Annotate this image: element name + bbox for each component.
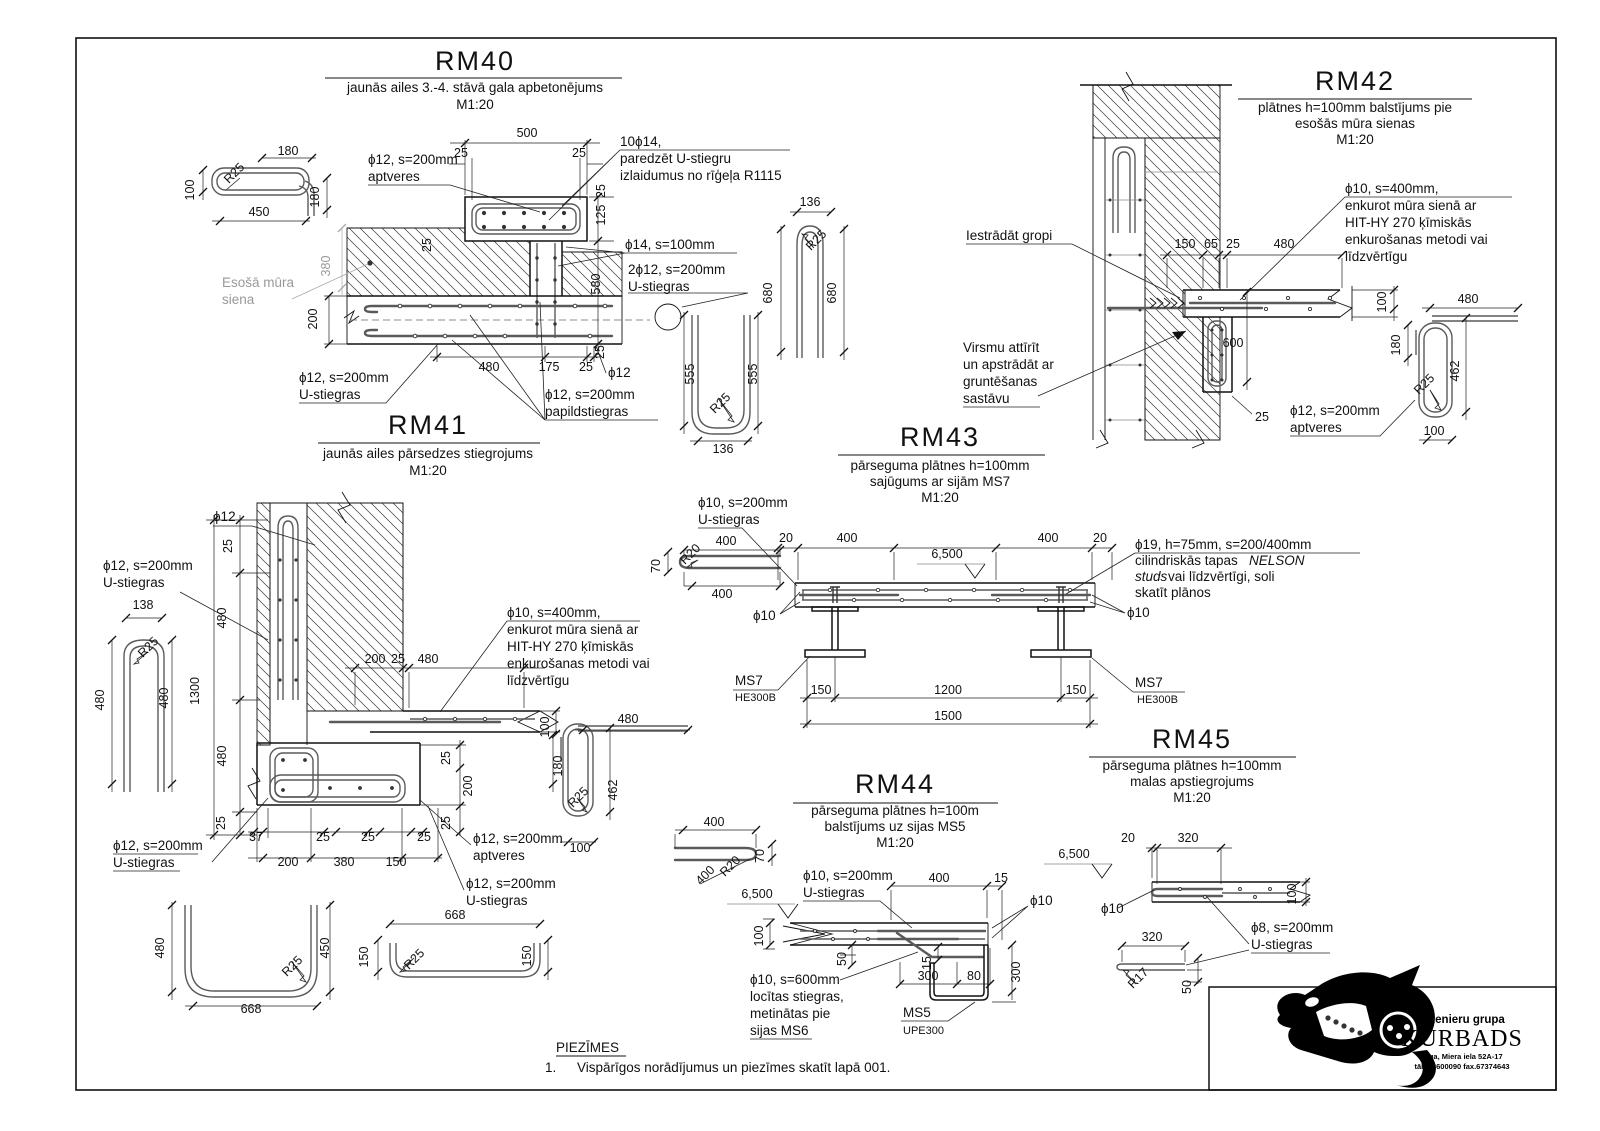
dim-text: 100 <box>1285 884 1299 905</box>
dim-text: 50 <box>1180 980 1194 994</box>
label-text: aptveres <box>473 848 525 863</box>
dim-text: 480 <box>153 938 167 959</box>
dim-text: 480 <box>1274 237 1295 251</box>
dim-text: R25 <box>1411 371 1437 397</box>
dim-text: 25 <box>593 345 607 359</box>
dim-text: 6,500 <box>931 547 962 561</box>
label-text: ϕ12, s=200mm <box>299 370 389 385</box>
dim-text: 320 <box>1142 930 1163 944</box>
detail-subtitle: plātnes h=100mm balstījums pie <box>1258 100 1452 115</box>
dim-text: 150 <box>386 855 407 869</box>
label-text: vai līdzvērtīgi, soli <box>1168 569 1275 584</box>
logo-phone: tālr.28600090 fax.67374643 <box>1382 1062 1542 1072</box>
label-text: U-stiegras <box>698 512 760 527</box>
detail-rm44: RM44pārseguma plātnes h=100mbalstījums u… <box>675 769 1053 1039</box>
label-text: U-stiegras <box>113 855 175 870</box>
dim-text: 100 <box>183 180 197 201</box>
label-text: Iestrādāt gropi <box>966 228 1052 243</box>
label-text: gruntēšanas <box>963 374 1038 389</box>
dim-text: 480 <box>93 690 107 711</box>
notes-block: PIEZĪMES1.Vispārīgos norādījumus un piez… <box>545 1040 890 1075</box>
notes-heading: PIEZĪMES <box>556 1040 619 1055</box>
label-text: HIT-HY 270 ķīmiskās <box>1345 215 1472 230</box>
label-text: 2ϕ12, s=200mm <box>628 262 725 277</box>
label-text: papildstiegras <box>545 404 629 419</box>
dim-text: 480 <box>618 712 639 726</box>
dim-text: 25 <box>439 751 453 765</box>
dim-text: 25 <box>1226 237 1240 251</box>
label-text: U-stiegras <box>103 575 165 590</box>
label-text: ϕ10 <box>1030 893 1053 908</box>
note-item-text: Vispārīgos norādījumus un piezīmes skatī… <box>577 1060 890 1075</box>
dim-text: 400 <box>704 815 725 829</box>
label-text: līdzvērtīgu <box>1345 249 1407 264</box>
dim-text: 668 <box>241 1002 262 1016</box>
dim-text: 25 <box>439 816 453 830</box>
dim-text: 300 <box>918 969 939 983</box>
label-text: 10ϕ14, <box>620 134 661 149</box>
dim-text: 380 <box>319 256 333 277</box>
dim-text: 15 <box>994 871 1008 885</box>
dim-text: 6,500 <box>741 887 772 901</box>
dim-text: 480 <box>479 360 500 374</box>
label-text: ϕ10, s=400mm, <box>1345 181 1438 196</box>
detail-title: RM44 <box>855 769 935 799</box>
dim-text: 138 <box>133 598 154 612</box>
label-text: un apstrādāt ar <box>963 357 1054 372</box>
dim-text: 180 <box>1389 335 1403 356</box>
dim-text: 25 <box>572 146 586 160</box>
dim-text: 70 <box>649 559 663 573</box>
detail-title: RM43 <box>900 422 980 452</box>
dim-text: 400 <box>837 531 858 545</box>
detail-rm42: RM42plātnes h=100mm balstījums pieesošās… <box>963 66 1522 448</box>
dim-text: 500 <box>517 126 538 140</box>
dim-text: 100 <box>1424 424 1445 438</box>
label-text: HE300B <box>1137 694 1178 706</box>
dim-text: 50 <box>835 952 849 966</box>
dim-text: 450 <box>249 205 270 219</box>
dim-text: 37 <box>249 830 263 844</box>
dim-text: 150 <box>1066 683 1087 697</box>
dim-text: 25 <box>579 360 593 374</box>
label-text: ϕ10, s=600mm <box>750 972 840 987</box>
note-item-number: 1. <box>545 1060 556 1075</box>
dim-text: 1300 <box>188 677 202 705</box>
label-text: ϕ12, s=200mm <box>103 558 193 573</box>
dim-text: 25 <box>594 184 608 198</box>
label-text: sijas MS6 <box>750 1023 809 1038</box>
dim-text: 200 <box>278 855 299 869</box>
detail-rm43: RM43pārseguma plātnes h=100mmsajūgums ar… <box>649 422 1360 728</box>
label-text: locītas stiegras, <box>750 989 844 1004</box>
label-text: NELSON <box>1249 553 1305 568</box>
dim-text: 450 <box>318 938 332 959</box>
dim-text: 20 <box>779 531 793 545</box>
dim-text: 555 <box>746 364 760 385</box>
label-text: ϕ8, s=200mm <box>1251 920 1333 935</box>
detail-subtitle: M1:20 <box>409 463 447 478</box>
logo-address: Rīga, Miera iela 52A-17 <box>1382 1052 1542 1062</box>
label-text: studs <box>1135 569 1168 584</box>
dim-text: 462 <box>606 780 620 801</box>
logo-group-name: inženieru grupa <box>1382 1014 1542 1027</box>
dim-text: 180 <box>551 756 565 777</box>
dim-text: 200 <box>461 776 475 797</box>
label-text: līdzvērtīgu <box>507 673 569 688</box>
label-text: Virsmu attīrīt <box>963 340 1040 355</box>
dim-text: 25 <box>316 830 330 844</box>
detail-subtitle: esošās mūra sienas <box>1295 116 1415 131</box>
dim-text: 6,500 <box>1058 847 1089 861</box>
label-text: MS7 <box>1135 675 1163 690</box>
dim-text: 150 <box>1175 237 1196 251</box>
steel-beam-he300b-right <box>1031 607 1091 657</box>
label-text: ϕ10 <box>753 608 776 623</box>
dim-text: 480 <box>418 652 439 666</box>
steel-beam-he300b-left <box>805 607 865 657</box>
label-text: ϕ12, s=200mm <box>368 152 458 167</box>
dim-text: 150 <box>811 683 832 697</box>
dim-text: 462 <box>1448 361 1462 382</box>
detail-subtitle: M1:20 <box>921 490 959 505</box>
dim-text: 380 <box>334 855 355 869</box>
title-block-texts: inženieru grupa KURBADS Rīga, Miera iela… <box>1382 1014 1542 1072</box>
label-text: siena <box>222 292 255 307</box>
dim-text: 175 <box>539 360 560 374</box>
dim-text: 400 <box>1038 531 1059 545</box>
dim-text: 480 <box>215 746 229 767</box>
detail-title: RM42 <box>1315 66 1395 96</box>
label-text: aptveres <box>368 169 420 184</box>
label-text: izlaidumus no rīģeļa R1115 <box>620 168 782 183</box>
detail-subtitle: M1:20 <box>1173 790 1211 805</box>
dim-text: 136 <box>713 442 734 456</box>
dim-text: 300 <box>1009 962 1023 983</box>
dim-text: 20 <box>1121 831 1135 845</box>
dim-text: 400 <box>716 534 737 548</box>
dim-text: 180 <box>308 187 322 208</box>
label-text: U-stiegras <box>628 279 690 294</box>
dim-text: 200 <box>306 309 320 330</box>
label-text: ϕ10, s=200mm <box>698 495 788 510</box>
label-text: cilindriskās tapas <box>1135 553 1238 568</box>
label-text: skatīt plānos <box>1135 585 1211 600</box>
label-text: Esošā mūra <box>222 275 295 290</box>
detail-title: RM41 <box>388 410 468 440</box>
label-text: MS5 <box>903 1005 931 1020</box>
label-text: MS7 <box>735 673 763 688</box>
label-text: enkurot mūra sienā ar <box>507 622 639 637</box>
label-text: U-stiegras <box>466 893 528 908</box>
dim-text: R25 <box>221 160 247 186</box>
label-text: ϕ10, s=200mm <box>803 868 893 883</box>
dim-text: 680 <box>825 283 839 304</box>
label-text: enkurošanas metodi vai <box>507 656 650 671</box>
dim-text: 100 <box>1375 292 1389 313</box>
dim-text: 1200 <box>934 683 962 697</box>
dim-text: 150 <box>357 947 371 968</box>
dim-text: 25 <box>417 830 431 844</box>
dim-text: 555 <box>683 364 697 385</box>
dim-text: 150 <box>520 946 534 967</box>
label-text: HE300B <box>735 692 776 704</box>
dim-text: 180 <box>278 144 299 158</box>
rebar-dots <box>482 211 566 229</box>
label-text: aptveres <box>1290 420 1342 435</box>
dim-text: 200 <box>365 652 386 666</box>
detail-subtitle: M1:20 <box>456 97 494 112</box>
detail-subtitle: pārseguma plātnes h=100mm <box>1103 758 1282 773</box>
label-text: ϕ12, s=200mm <box>545 387 635 402</box>
dim-text: 25 <box>221 539 235 553</box>
dim-text: 25 <box>361 830 375 844</box>
label-text: ϕ10 <box>1101 901 1124 916</box>
label-text: U-stiegras <box>1251 937 1313 952</box>
dim-text: 320 <box>1178 831 1199 845</box>
u-bar-shape-668 <box>168 901 334 1010</box>
drawing-canvas: RM40jaunās ailes 3.-4. stāvā gala apbeto… <box>0 0 1600 1131</box>
detail-rm41: RM41jaunās ailes pārsedzes stiegrojumsM1… <box>93 410 692 1016</box>
detail-subtitle: pārseguma plātnes h=100m <box>811 803 979 818</box>
label-text: ϕ19, h=75mm, s=200/400mm <box>1135 537 1311 552</box>
label-text: ϕ10, s=400mm, <box>507 605 600 620</box>
detail-title: RM40 <box>435 46 515 76</box>
dim-text: 400 <box>929 871 950 885</box>
drawing-sheet: RM40jaunās ailes 3.-4. stāvā gala apbeto… <box>0 0 1600 1131</box>
detail-subtitle: M1:20 <box>876 835 914 850</box>
label-text: U-stiegras <box>299 387 361 402</box>
label-text: ϕ12, s=200mm <box>466 876 556 891</box>
detail-title: RM45 <box>1152 724 1232 754</box>
dim-text: 680 <box>761 283 775 304</box>
label-text: enkurošanas metodi vai <box>1345 232 1488 247</box>
dim-text: 15 <box>920 956 934 970</box>
dim-text: R20 <box>717 853 743 879</box>
dim-text: 70 <box>753 849 767 863</box>
label-text: ϕ10 <box>1127 605 1150 620</box>
dim-text: R17 <box>1125 965 1151 991</box>
label-text: ϕ12, s=200mm <box>113 838 203 853</box>
detail-rm40: RM40jaunās ailes 3.-4. stāvā gala apbeto… <box>183 46 848 456</box>
detail-subtitle: jaunās ailes 3.-4. stāvā gala apbetonēju… <box>346 80 603 95</box>
label-text: ϕ12 <box>213 509 236 524</box>
dim-text: 480 <box>1458 292 1479 306</box>
label-text: UPE300 <box>903 1025 944 1037</box>
label-text: ϕ12, s=200mm <box>473 831 563 846</box>
dim-text: 100 <box>538 717 552 738</box>
dim-text: 25 <box>214 816 228 830</box>
logo-company-name: KURBADS <box>1382 1027 1542 1052</box>
detail-subtitle: balstījums uz sijas MS5 <box>824 819 965 834</box>
detail-subtitle: M1:20 <box>1336 132 1374 147</box>
dim-text: 125 <box>594 205 608 226</box>
dim-text: 25 <box>420 238 434 252</box>
label-text: enkurot mūra sienā ar <box>1345 198 1477 213</box>
detail-subtitle: pārseguma plātnes h=100mm <box>851 458 1030 473</box>
dim-text: 480 <box>215 608 229 629</box>
label-text: U-stiegras <box>803 885 865 900</box>
dim-text: 80 <box>967 969 981 983</box>
dim-text: 400 <box>712 587 733 601</box>
dim-text: R25 <box>803 227 829 253</box>
hook-bar-shape-480 <box>1404 304 1522 444</box>
label-text: sastāvu <box>963 391 1010 406</box>
detail-rm45: RM45pārseguma plātnes h=100mmmalas apsti… <box>1044 724 1333 994</box>
dim-text: 100 <box>570 841 591 855</box>
dim-text: 600 <box>1223 336 1244 350</box>
dim-text: 480 <box>157 688 171 709</box>
label-text: paredzēt U-stiegru <box>620 151 731 166</box>
dim-text: 25 <box>391 652 405 666</box>
dim-text: 668 <box>445 908 466 922</box>
hook-bar-shape-462 <box>549 724 692 846</box>
detail-subtitle: jaunās ailes pārsedzes stiegrojums <box>322 446 533 461</box>
dim-text: 400 <box>693 863 718 888</box>
dim-text: 1500 <box>934 709 962 723</box>
dim-text: 20 <box>1093 531 1107 545</box>
dim-text: 136 <box>800 195 821 209</box>
label-text: ϕ14, s=100mm <box>625 237 715 252</box>
detail-subtitle: malas apstiegrojums <box>1130 774 1254 789</box>
detail-subtitle: sajūgums ar sijām MS7 <box>870 474 1010 489</box>
dim-text: 65 <box>1204 237 1218 251</box>
label-text: ϕ12 <box>608 365 631 380</box>
dim-text: 100 <box>752 926 766 947</box>
dim-text: 25 <box>1255 410 1269 424</box>
label-text: HIT-HY 270 ķīmiskās <box>507 639 634 654</box>
label-text: ϕ12, s=200mm <box>1290 403 1380 418</box>
dim-text: R25 <box>401 946 427 972</box>
label-text: metinātas pie <box>750 1006 830 1021</box>
dim-text: 580 <box>589 274 603 295</box>
